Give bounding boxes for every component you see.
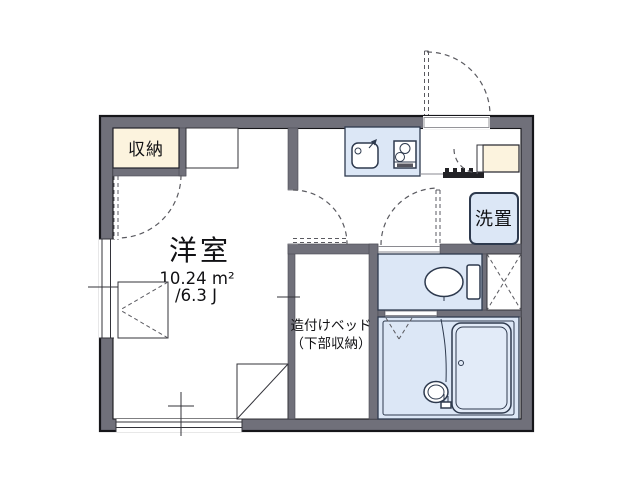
entrance-door (423, 51, 490, 129)
bathroom (378, 317, 519, 419)
entrance-door-arc (427, 52, 490, 115)
corner-step (237, 364, 288, 419)
floor-plan: 収納 洋室 10.24 m² /6.3 J (0, 0, 631, 480)
stove-icon (394, 141, 416, 168)
laundry-label: 洗置 (475, 209, 513, 230)
room-area-tatami: /6.3 J (175, 286, 217, 305)
room-label: 洋室 (169, 234, 231, 267)
bed-label-line1: 造付けベッド (291, 318, 372, 334)
casement-window-symbol (118, 282, 168, 338)
bed-label-line2: （下部収納） (291, 336, 372, 352)
sink-icon (352, 139, 378, 168)
upper-cabinet-box (186, 128, 238, 168)
kitchen-counter (345, 127, 420, 176)
closet-label: 収納 (128, 140, 164, 160)
pipe-shaft (487, 254, 521, 310)
bathtub-icon (452, 323, 511, 413)
toilet-room (378, 254, 482, 310)
floor-plan-drawing: 収納 洋室 10.24 m² /6.3 J (0, 0, 631, 480)
